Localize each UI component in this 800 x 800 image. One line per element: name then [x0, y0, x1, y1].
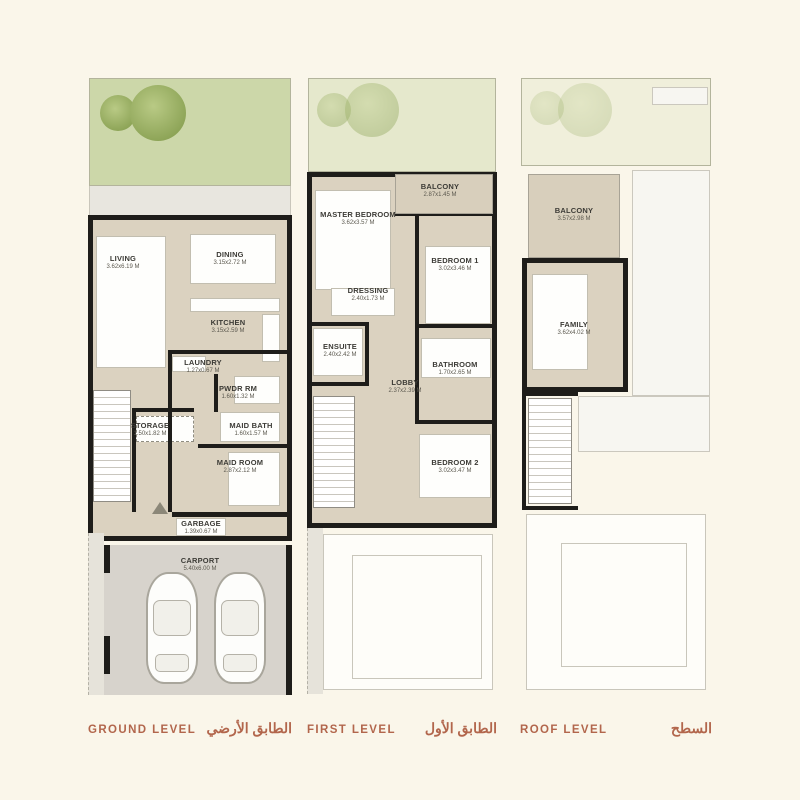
entrance-arrow-icon: [152, 502, 168, 514]
open-terrace: [526, 514, 706, 690]
legend-ground-en: GROUND LEVEL: [88, 724, 196, 736]
tree-icon: [345, 83, 399, 137]
interior-wall: [522, 392, 578, 396]
room-label-ensuite: ENSUITE 2.40x2.42 M: [310, 342, 370, 360]
roof-feature: [652, 87, 708, 105]
master-bed: [315, 190, 391, 290]
interior-wall: [172, 512, 287, 517]
first-level-plan: BALCONY 2.87x1.45 M MASTER BEDROOM 3.62x…: [307, 78, 497, 696]
open-to-below: [323, 534, 493, 690]
legend-roof-ar: السطح: [671, 720, 712, 737]
room-label-dining: DINING 3.15x2.72 M: [190, 250, 270, 268]
kitchen-counter: [190, 298, 280, 312]
room-label-bedroom-2: BEDROOM 2 3.02x3.47 M: [415, 458, 495, 476]
ground-level-plan: LIVING 3.62x6.19 M DINING 3.15x2.72 M KI…: [88, 78, 292, 696]
interior-wall: [415, 324, 493, 328]
terrace: [89, 186, 291, 215]
interior-wall: [522, 506, 578, 510]
room-label-dressing: DRESSING 2.40x1.73 M: [328, 286, 408, 304]
legend-first-en: FIRST LEVEL: [307, 724, 396, 736]
roof-slab: [632, 170, 710, 396]
side-walkway: [307, 528, 323, 694]
interior-wall: [522, 392, 526, 510]
legend-roof: ROOF LEVEL السطح: [520, 720, 712, 737]
room-label-carport: CARPORT 5.40x6.00 M: [150, 556, 250, 574]
room-label-balcony: BALCONY 2.87x1.45 M: [395, 182, 485, 200]
room-label-bathroom: BATHROOM 1.70x2.65 M: [420, 360, 490, 378]
stairs: [93, 390, 131, 502]
legend-roof-en: ROOF LEVEL: [520, 724, 607, 736]
floorplan-sheet: LIVING 3.62x6.19 M DINING 3.15x2.72 M KI…: [0, 0, 800, 800]
open-terrace-inner: [561, 543, 687, 667]
room-label-maid-bath: MAID BATH 1.60x1.57 M: [216, 421, 286, 439]
room-label-garbage: GARBAGE 1.39x0.67 M: [171, 519, 231, 537]
stairs: [313, 396, 355, 508]
interior-wall: [198, 444, 287, 448]
interior-wall: [415, 324, 419, 424]
room-label-bedroom-1: BEDROOM 1 3.02x3.46 M: [415, 256, 495, 274]
room-label-storage: STORAGE 1.50x1.82 M: [115, 421, 185, 439]
room-label-living: LIVING 3.62x6.19 M: [88, 254, 158, 272]
legend-ground-ar: الطابق الأرضي: [206, 720, 292, 737]
interior-wall: [168, 350, 287, 354]
legend-ground: GROUND LEVEL الطابق الأرضي: [88, 720, 292, 737]
side-walkway: [88, 533, 104, 695]
carport-wall: [286, 545, 292, 695]
tree-icon: [130, 85, 186, 141]
room-label-lobby: LOBBY 2.37x2.39 M: [370, 378, 440, 396]
interior-wall: [415, 420, 493, 424]
garden-area-ghost: [521, 78, 711, 166]
garden-area: [89, 78, 291, 186]
interior-wall: [309, 322, 367, 326]
room-label-powder-room: PWDR RM 1.60x1.32 M: [203, 384, 273, 402]
roof-level-plan: BALCONY 3.57x2.98 M FAMILY 3.62x4.02 M: [520, 78, 712, 696]
room-label-balcony: BALCONY 3.57x2.98 M: [534, 206, 614, 224]
interior-wall: [132, 408, 194, 412]
room-label-master-bedroom: MASTER BEDROOM 3.62x3.57 M: [313, 210, 403, 228]
room-label-family: FAMILY 3.62x4.02 M: [534, 320, 614, 338]
car-icon: [214, 572, 266, 684]
room-label-kitchen: KITCHEN 3.15x2.59 M: [188, 318, 268, 336]
carport-wall: [104, 545, 110, 573]
car-icon: [146, 572, 198, 684]
room-label-maid-room: MAID ROOM 2.87x2.12 M: [198, 458, 282, 476]
roof-slab: [578, 396, 710, 452]
garden-area-faded: [308, 78, 496, 172]
tree-icon: [558, 83, 612, 137]
room-label-laundry: LAUNDRY 1.27x0.67 M: [168, 358, 238, 376]
legend-first: FIRST LEVEL الطابق الأول: [307, 720, 497, 737]
stairs: [528, 398, 572, 504]
carport-wall: [104, 636, 110, 674]
legend-first-ar: الطابق الأول: [425, 720, 497, 737]
interior-wall: [309, 382, 369, 386]
open-to-below-inner: [352, 555, 482, 679]
